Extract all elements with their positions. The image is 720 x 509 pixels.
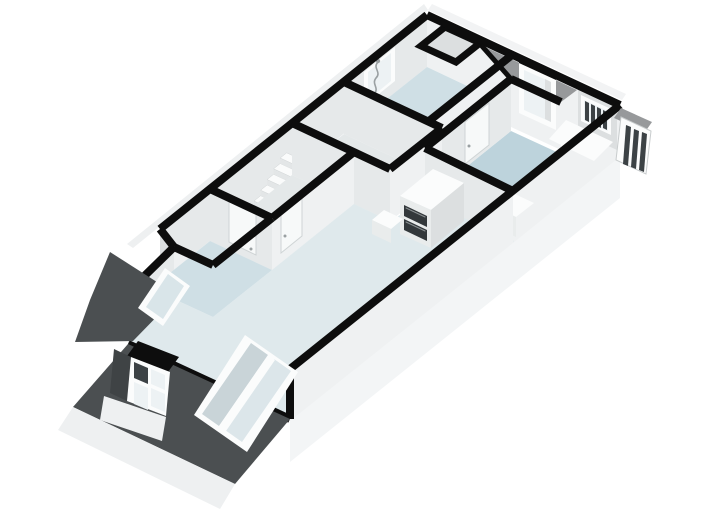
- corridor-door-handle: [284, 235, 287, 238]
- floorplan-3d-scene: [0, 0, 720, 509]
- study-door-handle: [250, 248, 253, 251]
- bedroom-door-handle: [468, 145, 471, 148]
- mullion-slat-1: [585, 101, 589, 122]
- floorplan-3d-viewport[interactable]: [0, 0, 720, 509]
